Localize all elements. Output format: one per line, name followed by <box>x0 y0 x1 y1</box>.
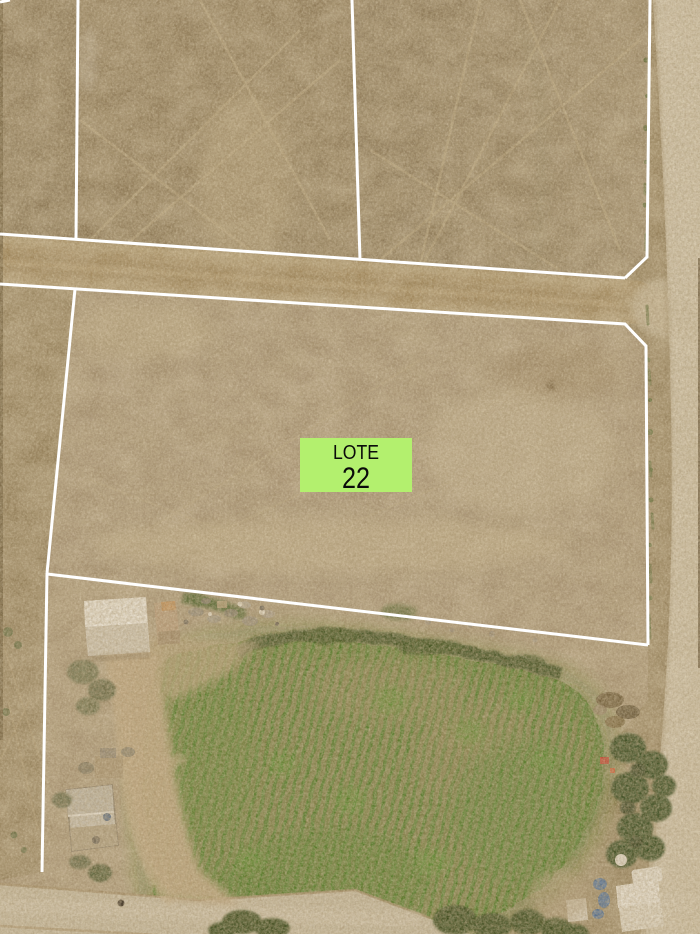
svg-text:22: 22 <box>342 462 370 495</box>
svg-text:LOTE: LOTE <box>333 442 379 464</box>
